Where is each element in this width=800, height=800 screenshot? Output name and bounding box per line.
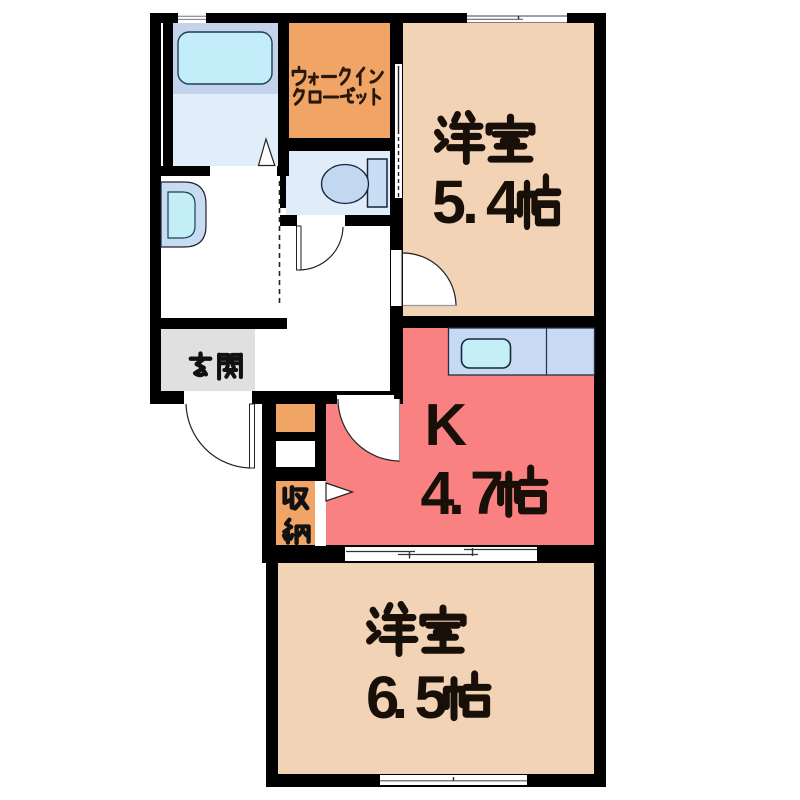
svg-text:7: 7 [470,459,504,527]
svg-text:4: 4 [486,168,520,236]
svg-text:.: . [392,664,409,731]
svg-text:5: 5 [432,168,466,236]
svg-text:K: K [425,392,468,458]
svg-text:5: 5 [415,664,448,731]
svg-text:.: . [462,168,479,236]
svg-text:.: . [448,459,465,527]
